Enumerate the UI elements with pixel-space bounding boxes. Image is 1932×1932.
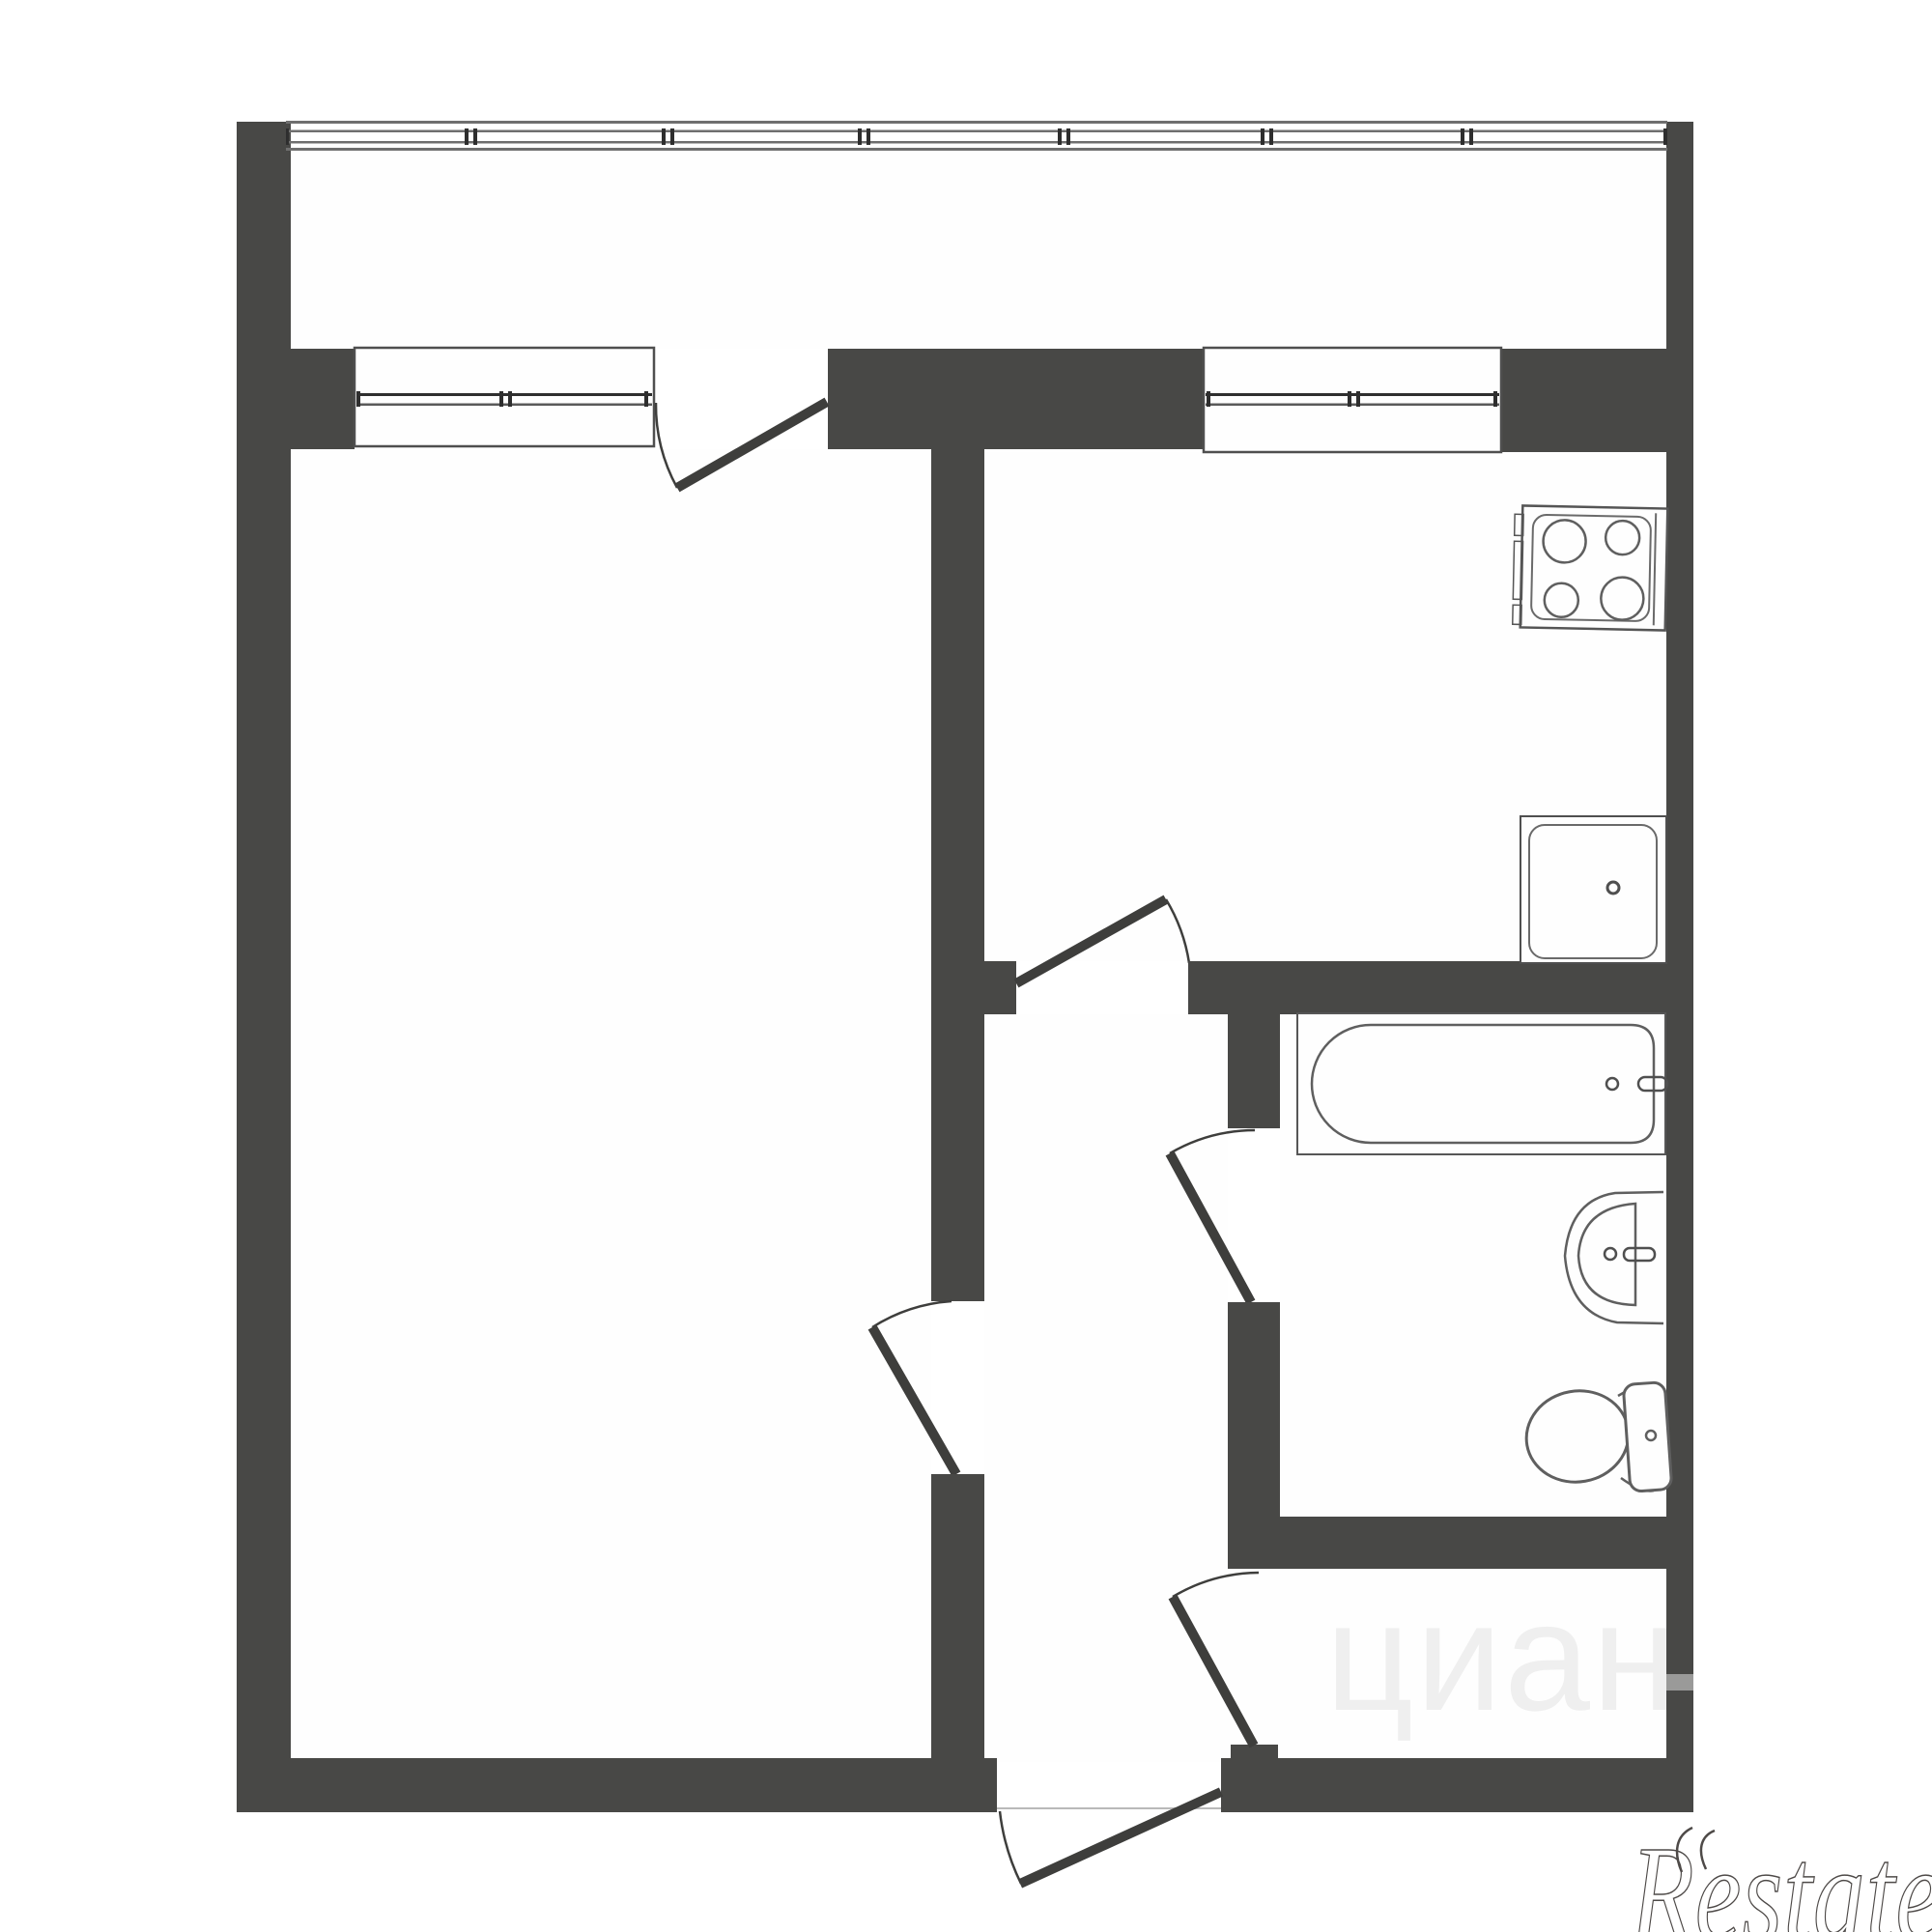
svg-text:циан: циан: [1325, 1570, 1679, 1743]
svg-text:Restate: Restate: [1630, 1819, 1932, 1932]
